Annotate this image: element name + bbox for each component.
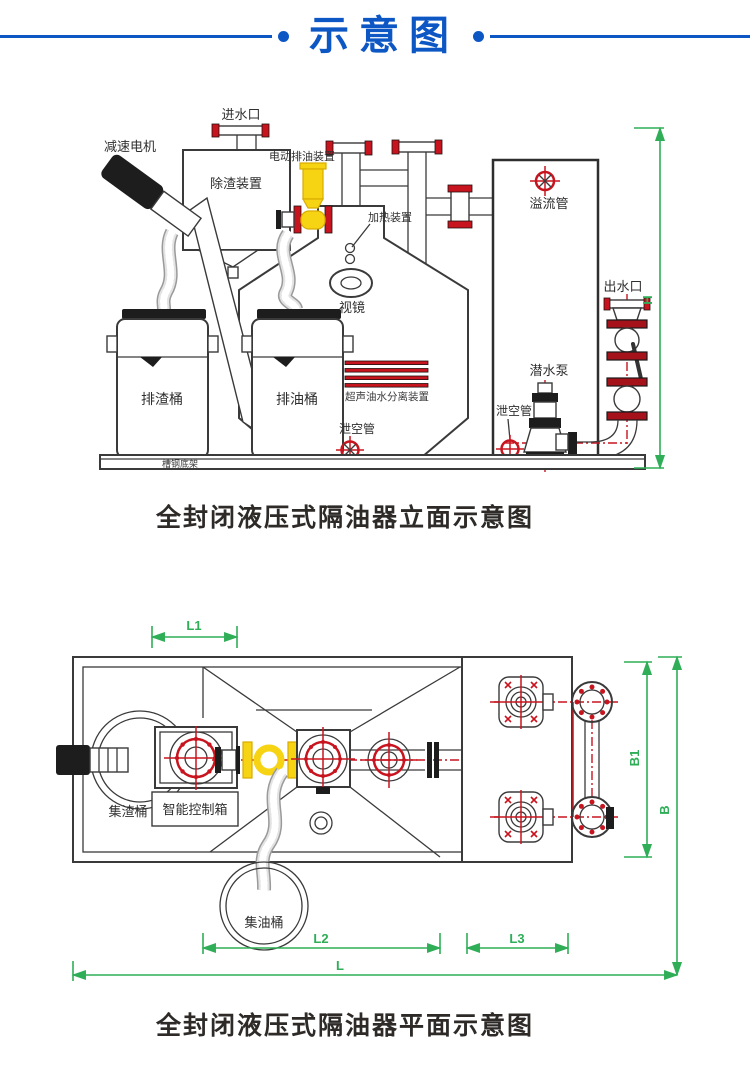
slag-bucket: 排渣桶 — [107, 309, 218, 458]
sight-glass-label: 视镜 — [339, 300, 365, 315]
electric-oil-discharge-label: 电动排油装置 — [269, 149, 335, 163]
plan-oil-hose — [263, 772, 282, 890]
dim-b-label: B — [657, 805, 672, 814]
dimension-l3: L3 — [467, 931, 568, 954]
dim-l-label: L — [336, 958, 344, 973]
base-frame: 槽钢底架 — [100, 455, 645, 469]
control-box-label: 智能控制箱 — [162, 802, 227, 817]
dim-l3-label: L3 — [509, 931, 524, 946]
submersible-pump-label: 潜水泵 — [529, 363, 568, 378]
plan-sight-glass — [310, 812, 332, 834]
drain-pipe-mid-label: 泄空管 — [339, 421, 375, 436]
inlet-flange — [217, 126, 265, 135]
slag-bucket-label: 排渣桶 — [141, 391, 183, 407]
schematic-drawing: 视镜 加热装置 — [0, 0, 750, 1092]
plan-inlet-box — [291, 727, 355, 794]
inlet-label: 进水口 — [221, 107, 260, 122]
overflow-pipe-label: 溢流管 — [529, 196, 568, 211]
elevation-caption: 全封闭液压式隔油器立面示意图 — [0, 498, 690, 534]
slag-collect-bucket-label: 集渣桶 — [108, 804, 147, 819]
plan-pump-bottom — [494, 790, 553, 844]
plan-diagram: L1 — [56, 618, 682, 981]
deslag-device-label: 除渣装置 — [210, 176, 262, 191]
oil-bucket-label: 排油桶 — [276, 391, 318, 407]
dimension-b1: B1 — [624, 662, 652, 857]
dim-b1-label: B1 — [627, 750, 642, 767]
gear-motor-label: 减速电机 — [104, 139, 156, 154]
dimension-b: B — [657, 657, 682, 975]
plan-pump-top — [494, 675, 553, 729]
deslag-device: 除渣装置 进水口 — [183, 107, 290, 278]
schematic-page: 示意图 视镜 加热装置 — [0, 0, 750, 1092]
drain-pipe-right-label: 泄空管 — [496, 403, 532, 418]
base-frame-label: 槽钢底架 — [162, 458, 198, 469]
dimension-l1: L1 — [152, 618, 237, 648]
dimension-l: L — [73, 958, 677, 981]
dim-l1-label: L1 — [186, 618, 201, 633]
plan-caption: 全封闭液压式隔油器平面示意图 — [0, 1006, 690, 1042]
heating-device-label: 加热装置 — [368, 211, 412, 224]
dim-h-label: H — [640, 295, 655, 304]
ultrasonic-separator-label: 超声油水分离装置 — [345, 390, 429, 403]
water-outlet-label: 出水口 — [603, 279, 642, 294]
oil-bucket: 排油桶 — [242, 309, 353, 458]
plan-outlet-manifold — [572, 682, 614, 837]
dim-l2-label: L2 — [313, 931, 328, 946]
oil-collect-bucket-label: 集油桶 — [244, 915, 283, 930]
control-box: 智能控制箱 — [152, 726, 238, 826]
plan-pump-bay — [490, 675, 620, 844]
elevation-diagram: 视镜 加热装置 — [99, 107, 664, 472]
valve-lever — [633, 344, 642, 383]
